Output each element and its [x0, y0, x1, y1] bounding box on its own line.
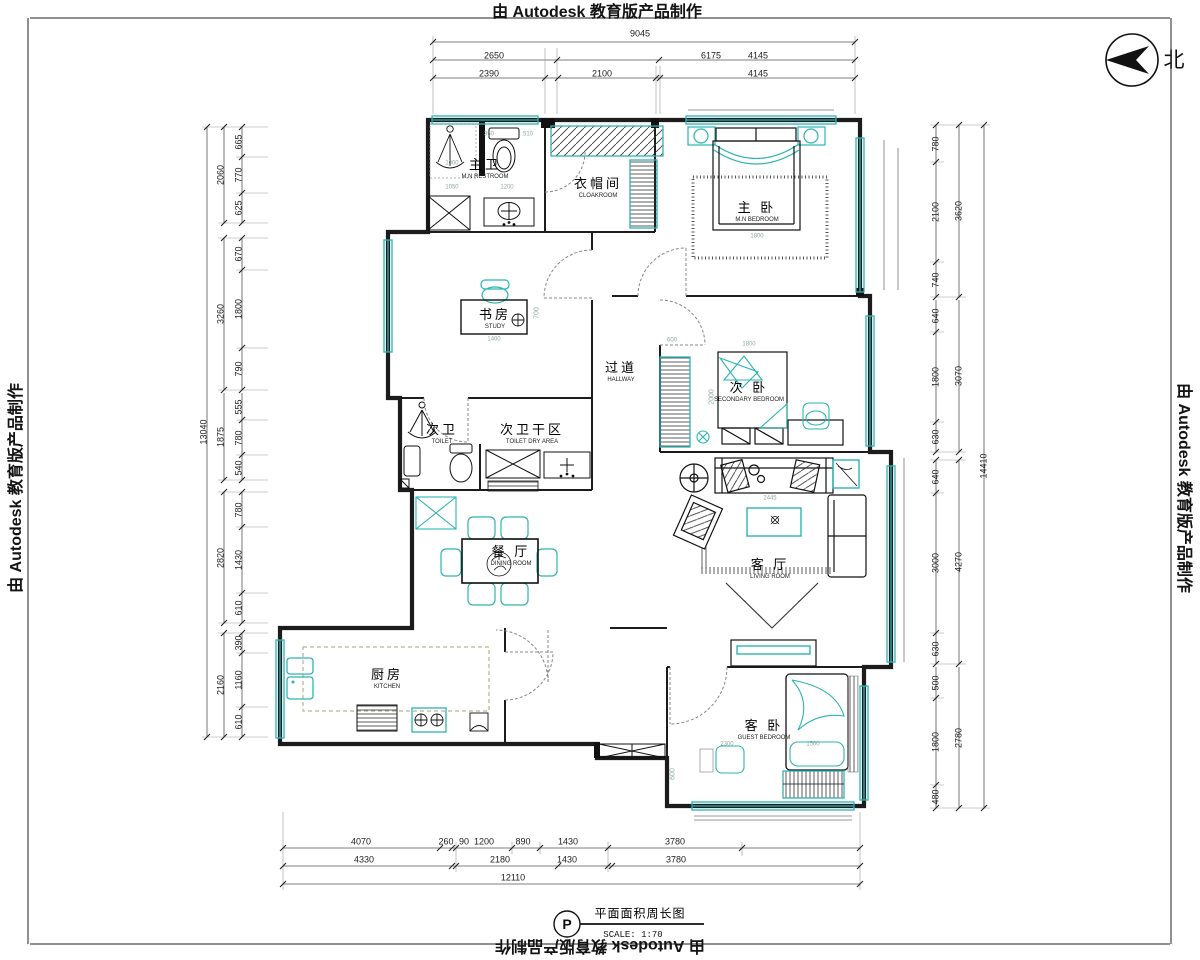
shaft-column-hatch	[428, 196, 470, 230]
watermark-top: 由 Autodesk 教育版产品制作	[492, 0, 702, 22]
watermark-right: 由 Autodesk 教育版产品制作	[1174, 383, 1198, 593]
bed-guest	[786, 674, 848, 770]
study-furniture	[461, 280, 527, 334]
dining-furniture	[441, 517, 557, 605]
drawing-scale: SCALE: 1:70	[603, 930, 662, 940]
sheet-border	[28, 18, 1171, 944]
tv-cabinet	[731, 640, 816, 666]
bed-master	[713, 141, 800, 230]
kitchen-furniture	[287, 647, 489, 732]
shoe-cabinet	[416, 497, 456, 529]
desk	[461, 300, 527, 334]
view-arrow	[726, 583, 818, 628]
master-bedroom-furniture	[688, 127, 827, 258]
watermark-left: 由 Autodesk 教育版产品制作	[2, 383, 26, 593]
entry-window-hatch	[599, 744, 665, 758]
bed-secondary	[718, 352, 787, 428]
kitchen-sink	[287, 677, 313, 699]
second-toilet-fixtures	[400, 402, 472, 488]
floorplan-sheet: { "watermark": { "text": "由 Autodesk 教育版…	[0, 0, 1200, 960]
coffee-table	[747, 508, 801, 536]
extension-lines	[202, 36, 990, 890]
title-block-symbol: P	[562, 916, 571, 932]
cloakroom-racks	[551, 126, 663, 228]
dining-table	[462, 539, 538, 583]
north-arrow-icon	[1106, 34, 1158, 86]
watermark-b: 由 Autodesk 教育版产品制作	[495, 936, 705, 960]
drawing-title: 平面面积周长图	[594, 905, 685, 922]
desk-secondary	[788, 420, 843, 445]
secondary-bedroom-furniture	[660, 352, 843, 447]
toilet-icon	[489, 128, 519, 172]
wardrobe	[660, 357, 690, 447]
north-label: 北	[1164, 44, 1185, 74]
guest-bedroom-furniture	[700, 674, 858, 798]
living-room-furniture	[674, 458, 866, 666]
vanity-sink-icon	[484, 198, 534, 226]
dry-area-fixtures	[486, 450, 590, 491]
counter	[303, 647, 489, 711]
floor-plan-canvas	[0, 0, 1200, 960]
wardrobe-guest	[783, 771, 844, 798]
